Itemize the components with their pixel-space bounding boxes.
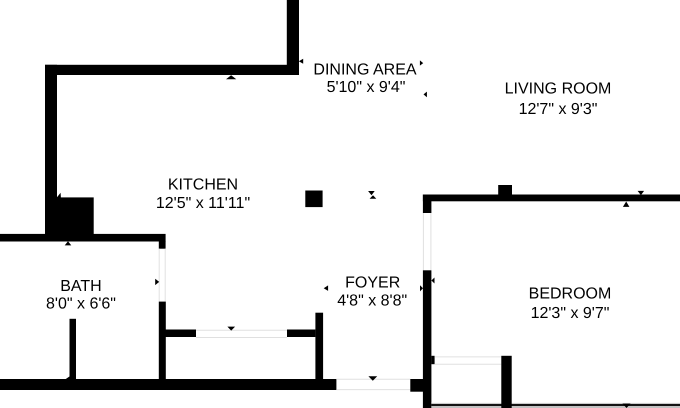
- svg-text:KITCHEN: KITCHEN: [168, 177, 238, 194]
- svg-text:FOYER: FOYER: [345, 275, 400, 292]
- svg-text:BATH: BATH: [60, 278, 101, 295]
- svg-text:12'3" x 9'7": 12'3" x 9'7": [531, 305, 610, 322]
- svg-text:8'0" x 6'6": 8'0" x 6'6": [46, 296, 116, 313]
- svg-text:LIVING ROOM: LIVING ROOM: [505, 81, 612, 98]
- svg-text:4'8" x 8'8": 4'8" x 8'8": [337, 293, 407, 310]
- svg-text:12'5" x 11'11": 12'5" x 11'11": [156, 195, 250, 212]
- svg-text:DINING AREA: DINING AREA: [313, 62, 416, 79]
- svg-text:12'7" x 9'3": 12'7" x 9'3": [519, 101, 598, 118]
- svg-text:BEDROOM: BEDROOM: [529, 285, 612, 302]
- svg-text:5'10" x 9'4": 5'10" x 9'4": [327, 79, 406, 96]
